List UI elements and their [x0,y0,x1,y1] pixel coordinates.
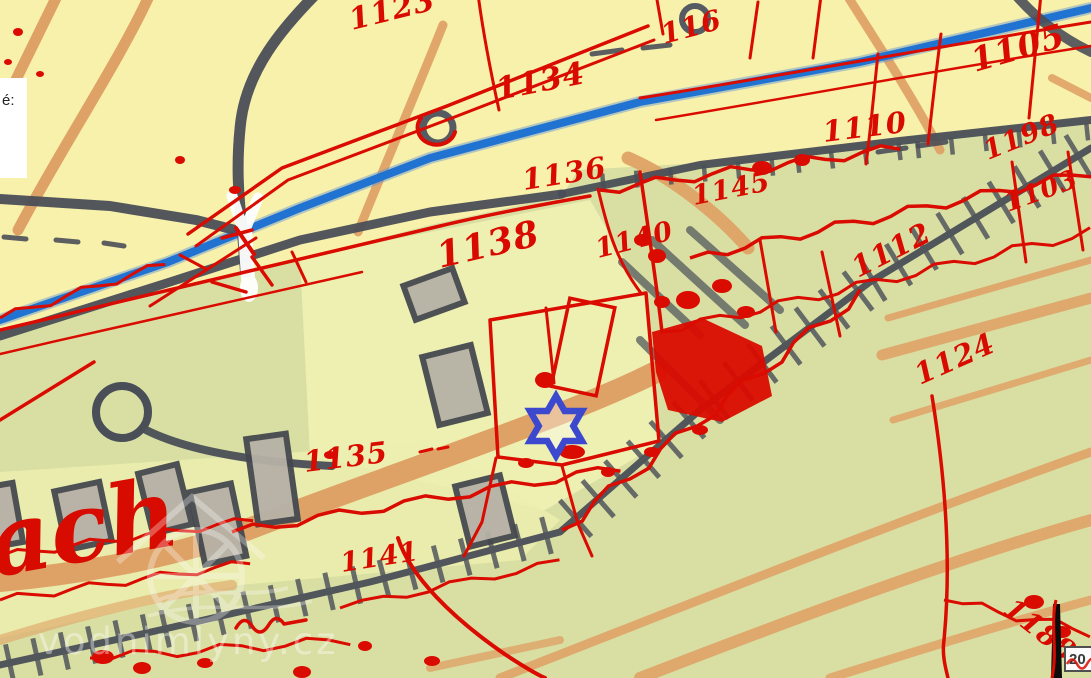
map-canvas[interactable]: 1123116113411051110113611981145110311381… [0,0,1091,678]
tooltip-text: é: [2,92,27,109]
watermark-text: vodnimlyny.cz [38,620,339,663]
map-viewport[interactable]: 1123116113411051110113611981145110311381… [0,0,1091,678]
scale-red-overlay [1066,648,1091,670]
tooltip-fragment: é: [0,78,27,178]
scale-indicator: 20 [1064,646,1091,672]
